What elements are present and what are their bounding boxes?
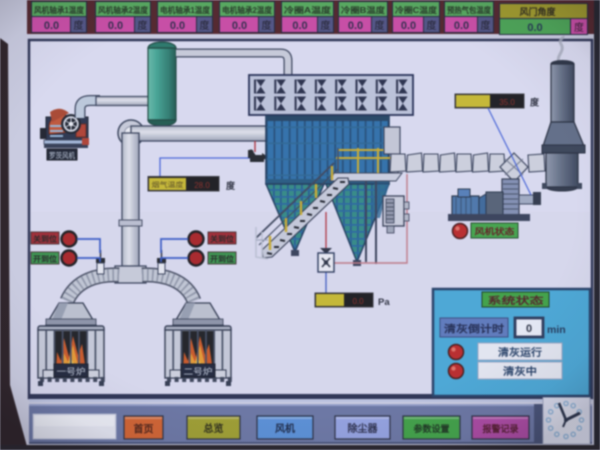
svg-text:0.0: 0.0 — [352, 297, 364, 306]
svg-text:度: 度 — [574, 21, 584, 34]
svg-text:冷圈C温度: 冷圈C温度 — [395, 5, 438, 15]
svg-text:清灰倒计时: 清灰倒计时 — [444, 323, 504, 336]
svg-text:风门角度: 风门角度 — [519, 6, 556, 17]
svg-text:0.0: 0.0 — [232, 20, 247, 32]
svg-text:二号炉: 二号炉 — [184, 367, 213, 377]
svg-text:烟气温度: 烟气温度 — [152, 180, 184, 189]
svg-text:关到位: 关到位 — [33, 234, 58, 244]
svg-text:冷圈B温度: 冷圈B温度 — [341, 5, 386, 15]
svg-text:清灰中: 清灰中 — [503, 365, 537, 378]
svg-text:度: 度 — [262, 19, 272, 32]
svg-text:冷圈A温度: 冷圈A温度 — [284, 5, 332, 15]
svg-text:电机轴承2温度: 电机轴承2温度 — [222, 5, 273, 15]
svg-text:度: 度 — [427, 19, 437, 32]
svg-text:电机轴承1温度: 电机轴承1温度 — [160, 5, 211, 15]
svg-text:预热气包温度: 预热气包温度 — [447, 5, 492, 15]
svg-text:度: 度 — [375, 19, 385, 32]
svg-text:一号炉: 一号炉 — [57, 367, 86, 377]
svg-text:清灰运行: 清灰运行 — [498, 346, 542, 359]
svg-text:除尘器: 除尘器 — [348, 422, 379, 435]
svg-text:度: 度 — [481, 19, 491, 32]
svg-text:罗茨风机: 罗茨风机 — [49, 150, 75, 160]
svg-text:min: min — [547, 324, 566, 336]
svg-text:风机: 风机 — [275, 422, 295, 435]
svg-text:0.0: 0.0 — [348, 20, 363, 32]
svg-text:0.0: 0.0 — [401, 20, 416, 32]
svg-text:度: 度 — [530, 97, 540, 108]
svg-text:0: 0 — [526, 323, 532, 335]
svg-text:0.0: 0.0 — [170, 20, 185, 32]
svg-text:度: 度 — [321, 19, 331, 32]
svg-text:风机轴承1温度: 风机轴承1温度 — [34, 5, 85, 15]
svg-text:0.0: 0.0 — [292, 20, 307, 32]
svg-text:0.0: 0.0 — [454, 20, 469, 32]
svg-text:风机状态: 风机状态 — [475, 227, 516, 237]
svg-text:关到位: 关到位 — [210, 234, 235, 244]
svg-text:参数设置: 参数设置 — [413, 423, 449, 434]
svg-text:首页: 首页 — [134, 423, 154, 436]
svg-text:Pa: Pa — [378, 297, 390, 308]
svg-text:总览: 总览 — [204, 422, 224, 435]
svg-text:开到位: 开到位 — [33, 254, 58, 264]
svg-text:0.0: 0.0 — [527, 22, 542, 34]
svg-text:0.0: 0.0 — [44, 20, 59, 32]
svg-text:度: 度 — [200, 19, 210, 32]
svg-text:系统状态: 系统状态 — [488, 295, 545, 307]
svg-text:28.0: 28.0 — [194, 181, 210, 190]
svg-text:度: 度 — [74, 19, 84, 32]
svg-text:开到位: 开到位 — [210, 254, 235, 264]
svg-text:风机轴承2温度: 风机轴承2温度 — [98, 5, 149, 15]
svg-text:度: 度 — [226, 180, 236, 191]
svg-text:度: 度 — [138, 19, 148, 32]
svg-text:报警记录: 报警记录 — [482, 423, 518, 434]
svg-text:35.0: 35.0 — [499, 98, 515, 107]
svg-text:0.0: 0.0 — [108, 20, 123, 32]
